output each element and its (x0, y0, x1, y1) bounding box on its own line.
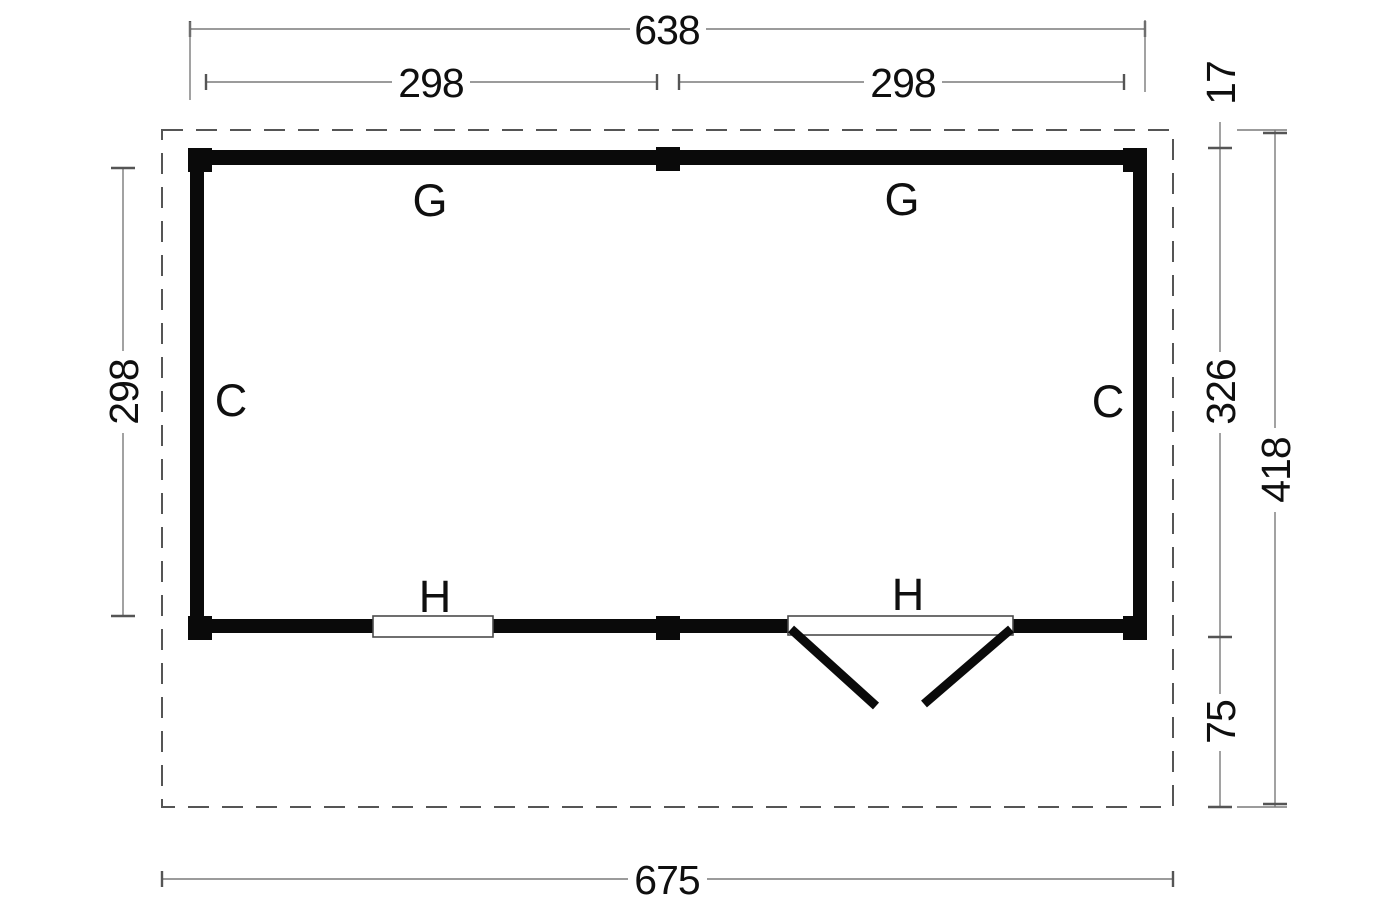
post-top-right (1123, 148, 1147, 172)
dim-right-wall-height-value: 326 (1198, 359, 1244, 424)
dim-right-overhang-top-value: 17 (1198, 61, 1244, 105)
dim-top-bay-right-value: 298 (870, 60, 936, 106)
dim-right-total-value: 418 (1253, 437, 1299, 503)
label-door-opening: H (892, 569, 925, 620)
post-top-left (188, 148, 212, 172)
post-top-middle (656, 147, 680, 171)
dim-left-inner-height: 298 (101, 168, 147, 616)
dim-top-bay-left-value: 298 (398, 60, 464, 106)
post-bottom-middle (656, 616, 680, 640)
label-window-opening: H (419, 571, 452, 622)
posts (188, 147, 1147, 640)
dim-bottom-total: 675 (162, 857, 1173, 903)
dim-top-bay-right: 298 (679, 60, 1124, 106)
wall-right (1133, 150, 1147, 633)
dim-right-overhang-bottom-value: 75 (1198, 700, 1244, 744)
dim-left-inner-height-value: 298 (101, 359, 147, 425)
roof-outline (162, 130, 1173, 807)
label-top-wall-right: G (884, 174, 919, 225)
floor-plan-canvas: 638 298 298 298 17 326 75 (0, 0, 1400, 906)
label-right-wall: C (1092, 376, 1125, 427)
walls (190, 150, 1147, 633)
dim-top-total: 638 (190, 7, 1145, 100)
dim-top-bay-left: 298 (206, 60, 657, 106)
post-bottom-right (1123, 616, 1147, 640)
double-door (788, 616, 1013, 706)
door-leaf-left (791, 629, 876, 706)
wall-left (190, 150, 204, 633)
label-top-wall-left: G (412, 175, 447, 226)
dim-right-total: 418 (1237, 130, 1299, 807)
dim-top-total-value: 638 (634, 7, 700, 53)
label-left-wall: C (215, 375, 248, 426)
door-leaf-right (924, 629, 1011, 704)
post-bottom-left (188, 616, 212, 640)
dim-right-chain: 17 326 75 (1198, 61, 1244, 807)
floor-plan-page: 638 298 298 298 17 326 75 (0, 0, 1400, 906)
dim-bottom-total-value: 675 (634, 857, 700, 903)
wall-labels: G G C C H H (215, 174, 1125, 622)
